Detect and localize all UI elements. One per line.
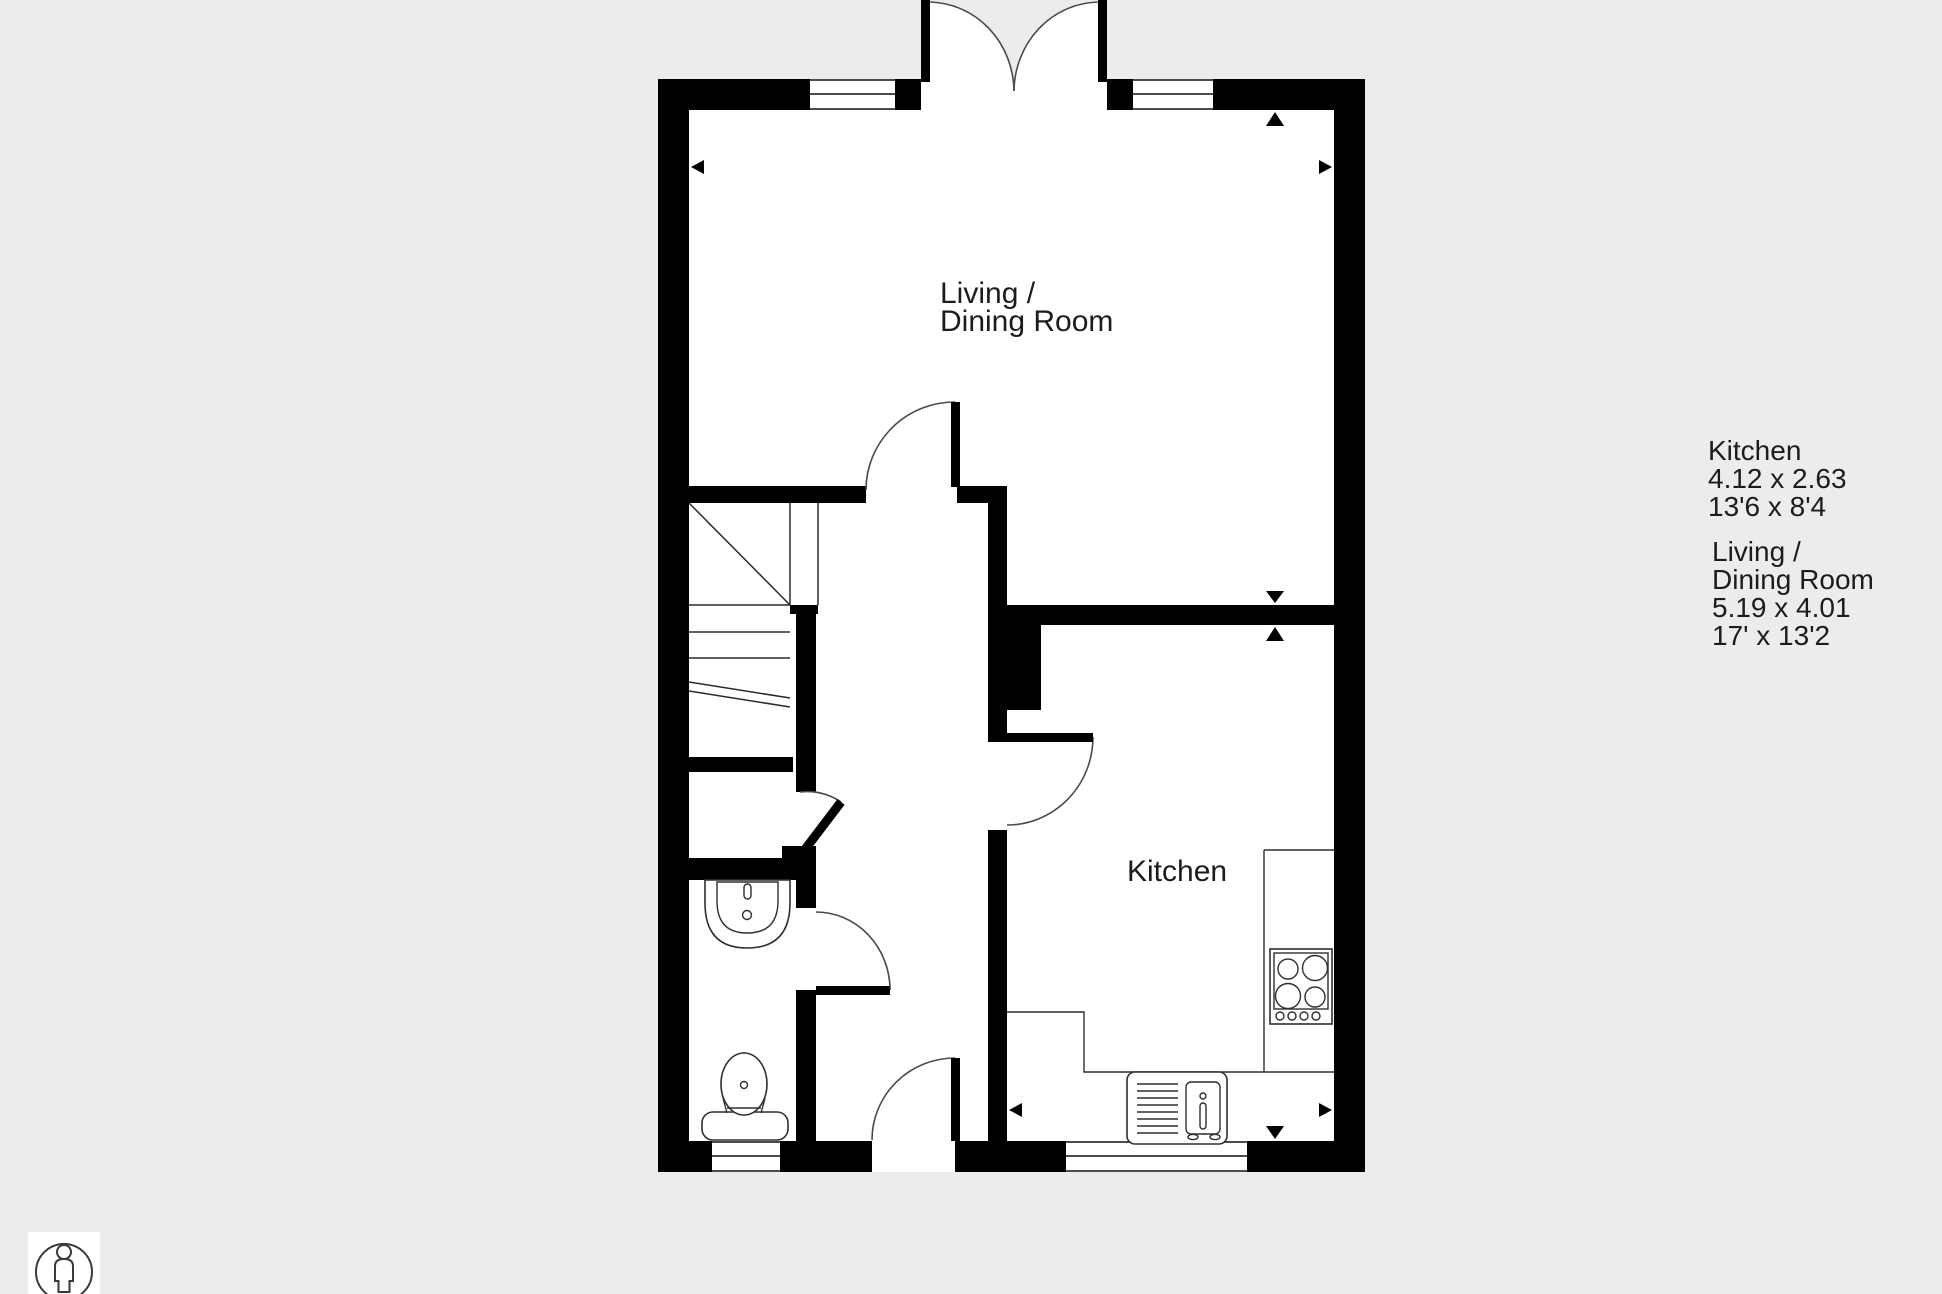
- panel-kitchen-metric: 4.12 x 2.63: [1708, 463, 1847, 494]
- wc-basin-icon: [705, 880, 790, 948]
- dimensions-panel: Kitchen 4.12 x 2.63 13'6 x 8'4 Living / …: [1708, 435, 1874, 651]
- window-top-right: [1133, 79, 1213, 110]
- french-doors: [921, 0, 1107, 110]
- door-leaf: [1098, 0, 1107, 82]
- panel-kitchen-name: Kitchen: [1708, 435, 1801, 466]
- window-bottom-wc: [712, 1141, 780, 1172]
- door-leaf: [951, 402, 960, 487]
- window-bottom-kitchen: [1066, 1141, 1247, 1172]
- panel-living-metric: 5.19 x 4.01: [1712, 592, 1851, 623]
- panel-living-imperial: 17' x 13'2: [1712, 620, 1830, 651]
- person-in-circle-icon: [28, 1232, 100, 1294]
- window-top-left: [810, 79, 895, 110]
- kitchen-label: Kitchen: [1127, 855, 1227, 888]
- door-leaf: [816, 986, 890, 995]
- panel-living-name-line1: Living /: [1712, 536, 1801, 567]
- living-dining-label-line2: Dining Room: [940, 305, 1113, 338]
- door-leaf: [921, 0, 930, 82]
- panel-kitchen-imperial: 13'6 x 8'4: [1708, 491, 1826, 522]
- door-leaf: [1000, 733, 1093, 742]
- floorplan-canvas: Living / Dining Room Kitchen Kitchen 4.1…: [0, 0, 1942, 1294]
- hob-icon: [1270, 949, 1332, 1024]
- door-leaf: [951, 1058, 960, 1141]
- panel-living-name-line2: Dining Room: [1712, 564, 1874, 595]
- kitchen-sink-drainer-unit-icon: [1127, 1072, 1227, 1144]
